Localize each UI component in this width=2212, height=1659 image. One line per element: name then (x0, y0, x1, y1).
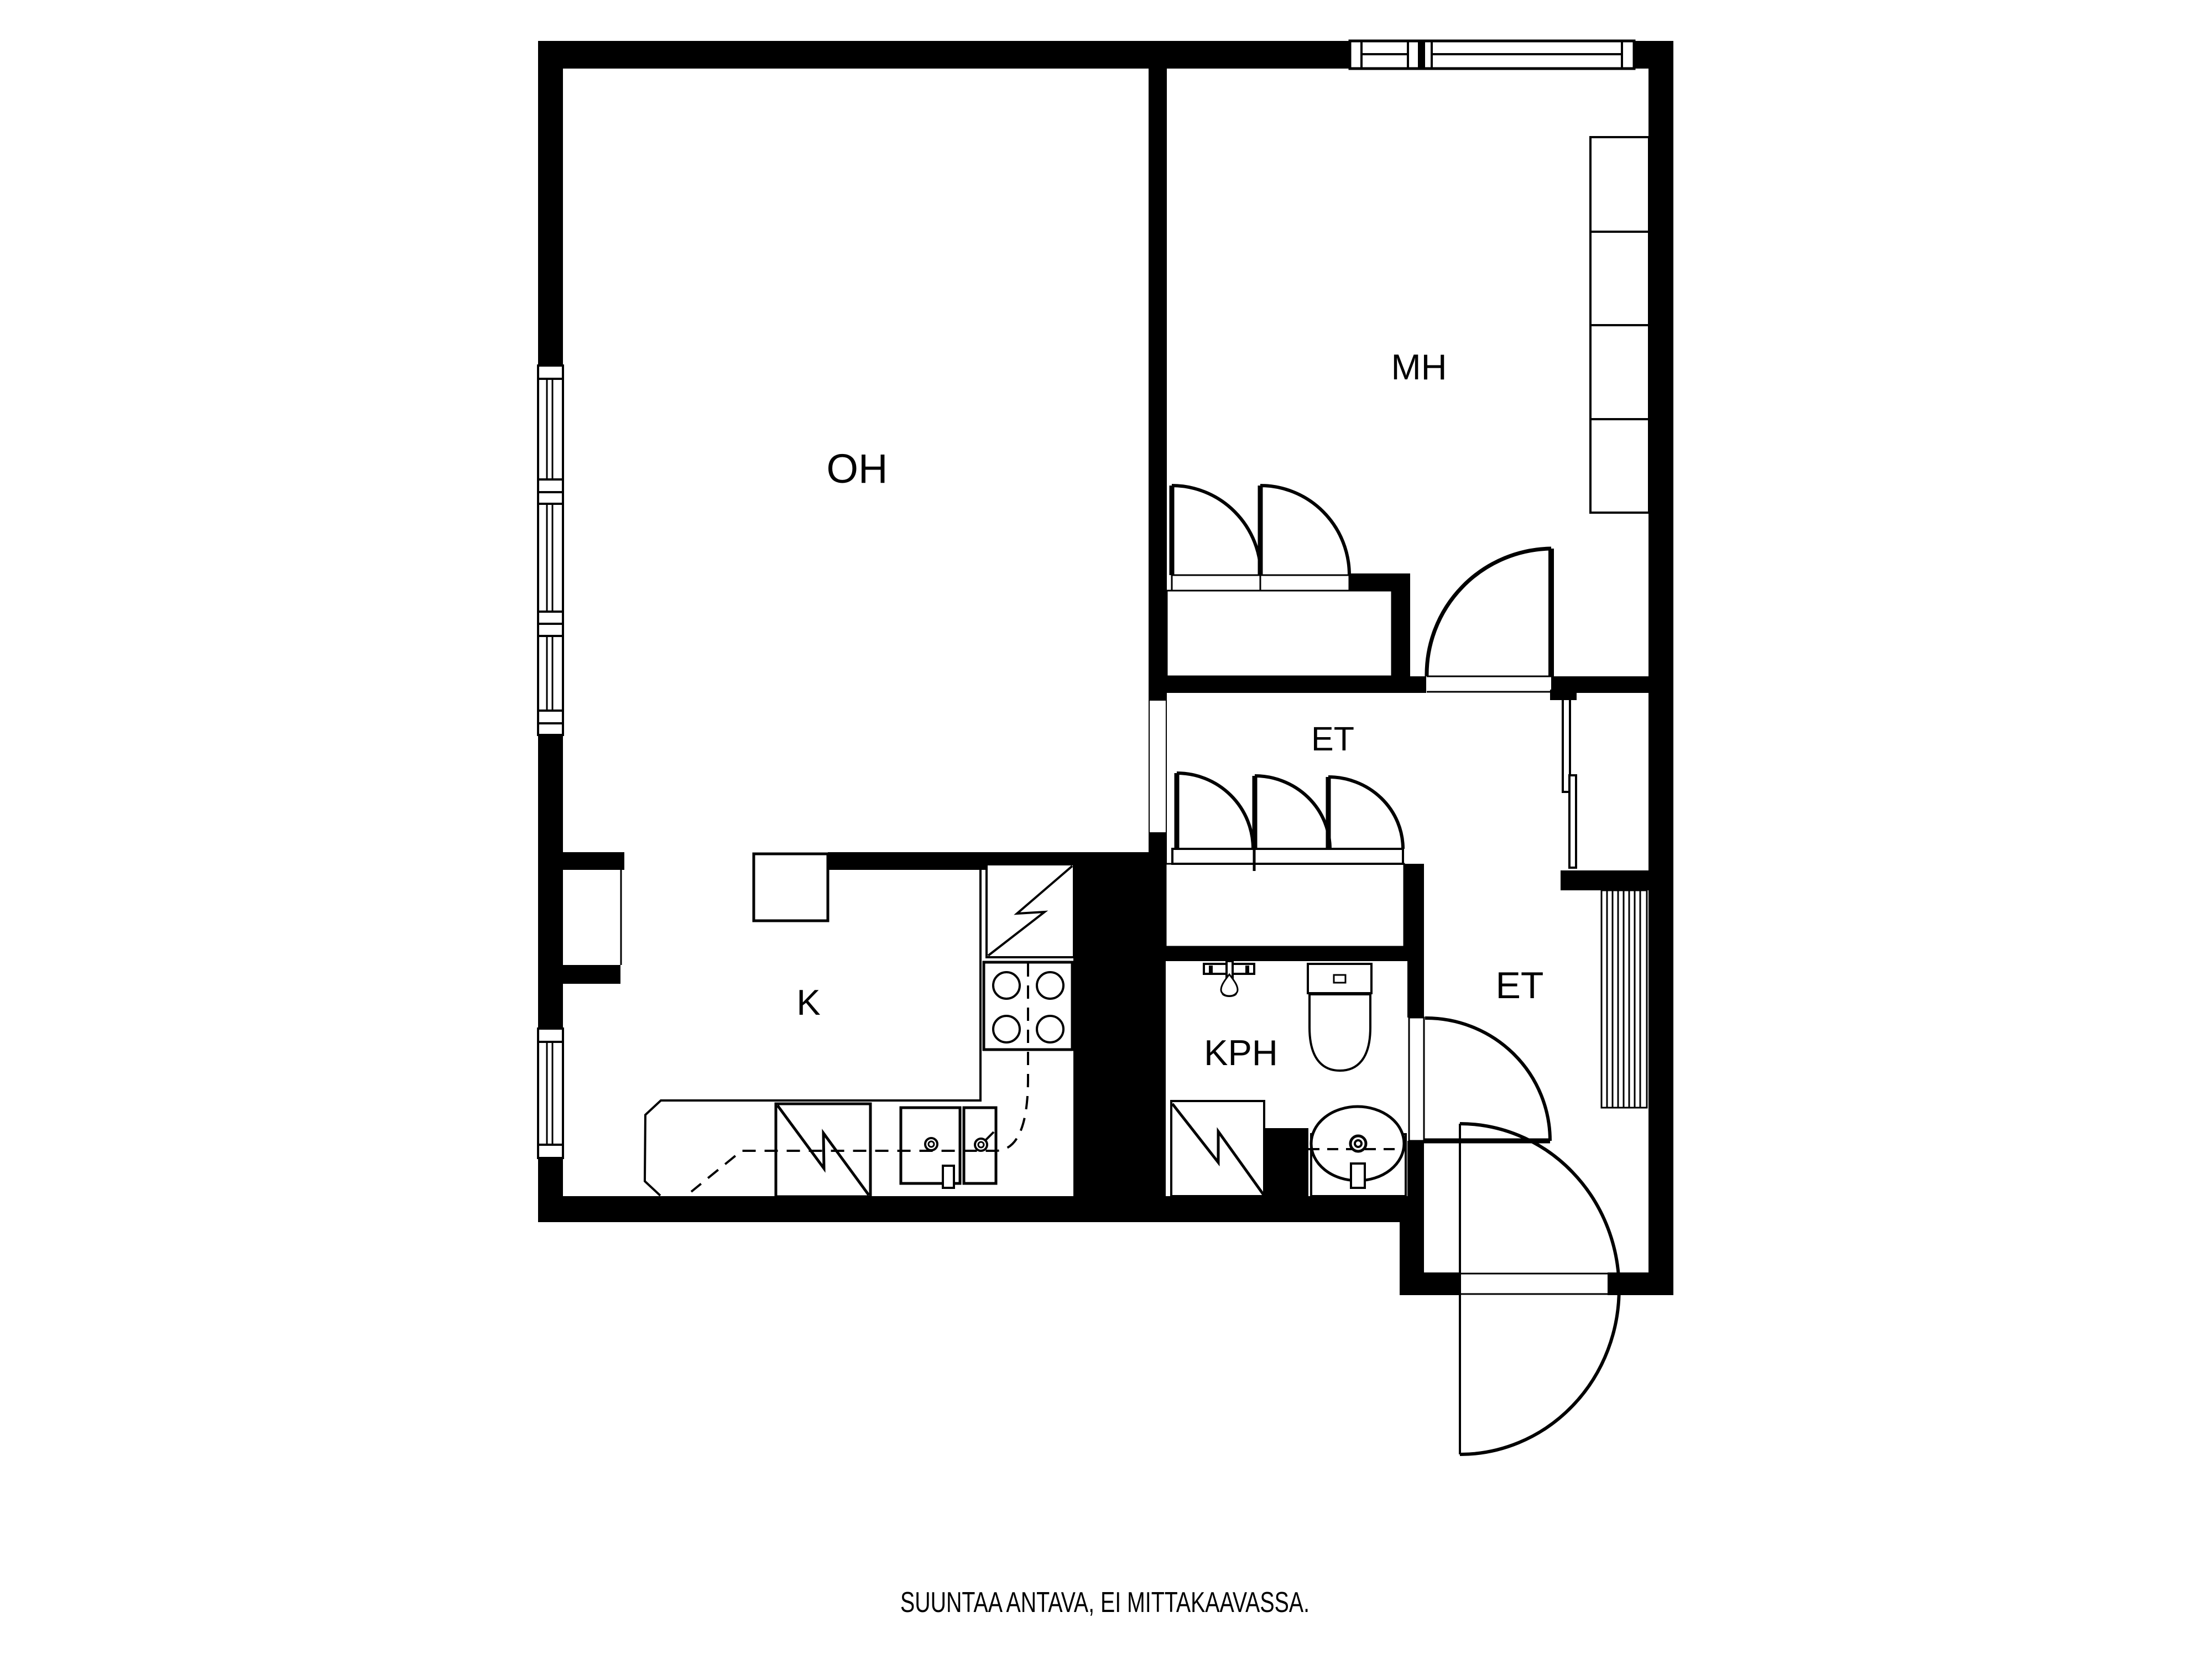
svg-text:OH: OH (827, 446, 888, 492)
svg-text:KPH: KPH (1204, 1032, 1278, 1073)
svg-text:ET: ET (1496, 964, 1544, 1006)
svg-text:K: K (796, 982, 820, 1022)
svg-text:SUUNTAA ANTAVA, EI MITTAKAAVAS: SUUNTAA ANTAVA, EI MITTAKAAVASSA. (900, 1587, 1310, 1619)
svg-text:ET: ET (1311, 720, 1354, 758)
svg-text:MH: MH (1391, 347, 1447, 387)
